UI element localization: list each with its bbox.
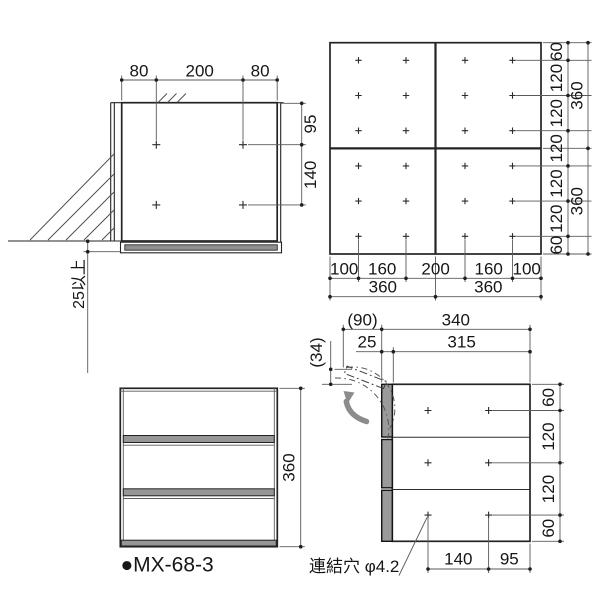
side-dim-34: (34) xyxy=(307,337,326,367)
rear-dim-360-ht: 360 xyxy=(568,81,587,109)
side-dim-340: 340 xyxy=(442,310,470,329)
plan-mounting-hole-marks xyxy=(152,141,247,209)
side-dim-95: 95 xyxy=(500,550,519,569)
front-outline xyxy=(120,388,277,546)
side-view: (90) 340 25 315 (34) 60 120 120 60 140 9… xyxy=(307,310,564,576)
side-dim-140: 140 xyxy=(444,550,472,569)
side-door-strip-2 xyxy=(382,440,393,488)
front-dim-360: 360 xyxy=(280,453,299,481)
rear-dim-120-5: 120 xyxy=(547,205,566,233)
front-tier-divider-2 xyxy=(123,489,274,496)
rear-dim-120-2: 120 xyxy=(547,99,566,127)
rear-dim-160-r: 160 xyxy=(475,259,503,278)
wall-section-hatch xyxy=(30,154,114,240)
plan-door-front-panel xyxy=(125,245,277,250)
side-dimension-ticks xyxy=(331,329,560,569)
rear-dim-100-r: 100 xyxy=(513,259,541,278)
rear-dim-360-wr: 360 xyxy=(474,278,502,297)
side-dim-60-t: 60 xyxy=(539,388,558,407)
plan-dim-center-200: 200 xyxy=(186,62,214,81)
rear-dim-200: 200 xyxy=(421,259,449,278)
plan-dim-95: 95 xyxy=(301,115,320,134)
side-tier-dividers xyxy=(392,437,530,489)
rear-dim-120-3: 120 xyxy=(547,134,566,162)
surface-tick-marks xyxy=(158,94,186,103)
plan-dimension-lines xyxy=(84,76,306,374)
plan-clearance-label: 25以上 xyxy=(70,259,88,309)
plan-dim-140: 140 xyxy=(301,161,320,189)
rear-dim-120-4: 120 xyxy=(547,169,566,197)
side-dim-315: 315 xyxy=(447,333,475,352)
side-dim-60-b: 60 xyxy=(539,519,558,538)
front-view: 360 ●MX-68-3 xyxy=(120,388,304,576)
side-dim-120-1: 120 xyxy=(539,422,558,450)
front-base-strip xyxy=(121,540,276,546)
side-door-strip-1 xyxy=(382,384,393,437)
side-dim-25: 25 xyxy=(358,333,377,352)
plan-dim-right-80: 80 xyxy=(251,62,270,81)
technical-drawing-sheet: 80 200 80 95 140 25以上 100 160 200 160 10… xyxy=(0,0,600,600)
side-dim-90: (90) xyxy=(347,310,377,329)
rear-dim-360-hb: 360 xyxy=(568,187,587,215)
drawing-canvas: 80 200 80 95 140 25以上 100 160 200 160 10… xyxy=(0,0,600,600)
side-connect-hole-marks xyxy=(425,407,493,519)
rear-dim-100-l: 100 xyxy=(330,259,358,278)
rear-dim-360-wl: 360 xyxy=(369,278,397,297)
connect-hole-note: 連結穴 φ4.2 xyxy=(309,557,399,576)
side-door-strip-3 xyxy=(382,490,393,541)
swing-arrow-body xyxy=(346,402,366,422)
plan-dim-left-80: 80 xyxy=(130,62,149,81)
plan-dimension-ticks xyxy=(88,80,302,252)
front-tier-divider-1 xyxy=(123,436,274,443)
plan-body-outline xyxy=(122,103,278,241)
rear-view: 100 160 200 160 100 360 360 60 120 120 1… xyxy=(330,42,592,300)
rear-dim-60-b: 60 xyxy=(547,236,566,255)
plan-view: 80 200 80 95 140 25以上 xyxy=(8,62,320,374)
product-label: ●MX-68-3 xyxy=(121,554,214,577)
front-panel-edges xyxy=(120,388,277,546)
plan-wall-lines xyxy=(8,103,284,242)
rear-dim-60-t: 60 xyxy=(547,42,566,61)
side-dim-120-2: 120 xyxy=(539,475,558,503)
side-dimension-lines xyxy=(322,325,564,576)
rear-unit-dividers xyxy=(330,43,541,254)
rear-dim-120-1: 120 xyxy=(547,64,566,92)
rear-dim-160-l: 160 xyxy=(368,259,396,278)
